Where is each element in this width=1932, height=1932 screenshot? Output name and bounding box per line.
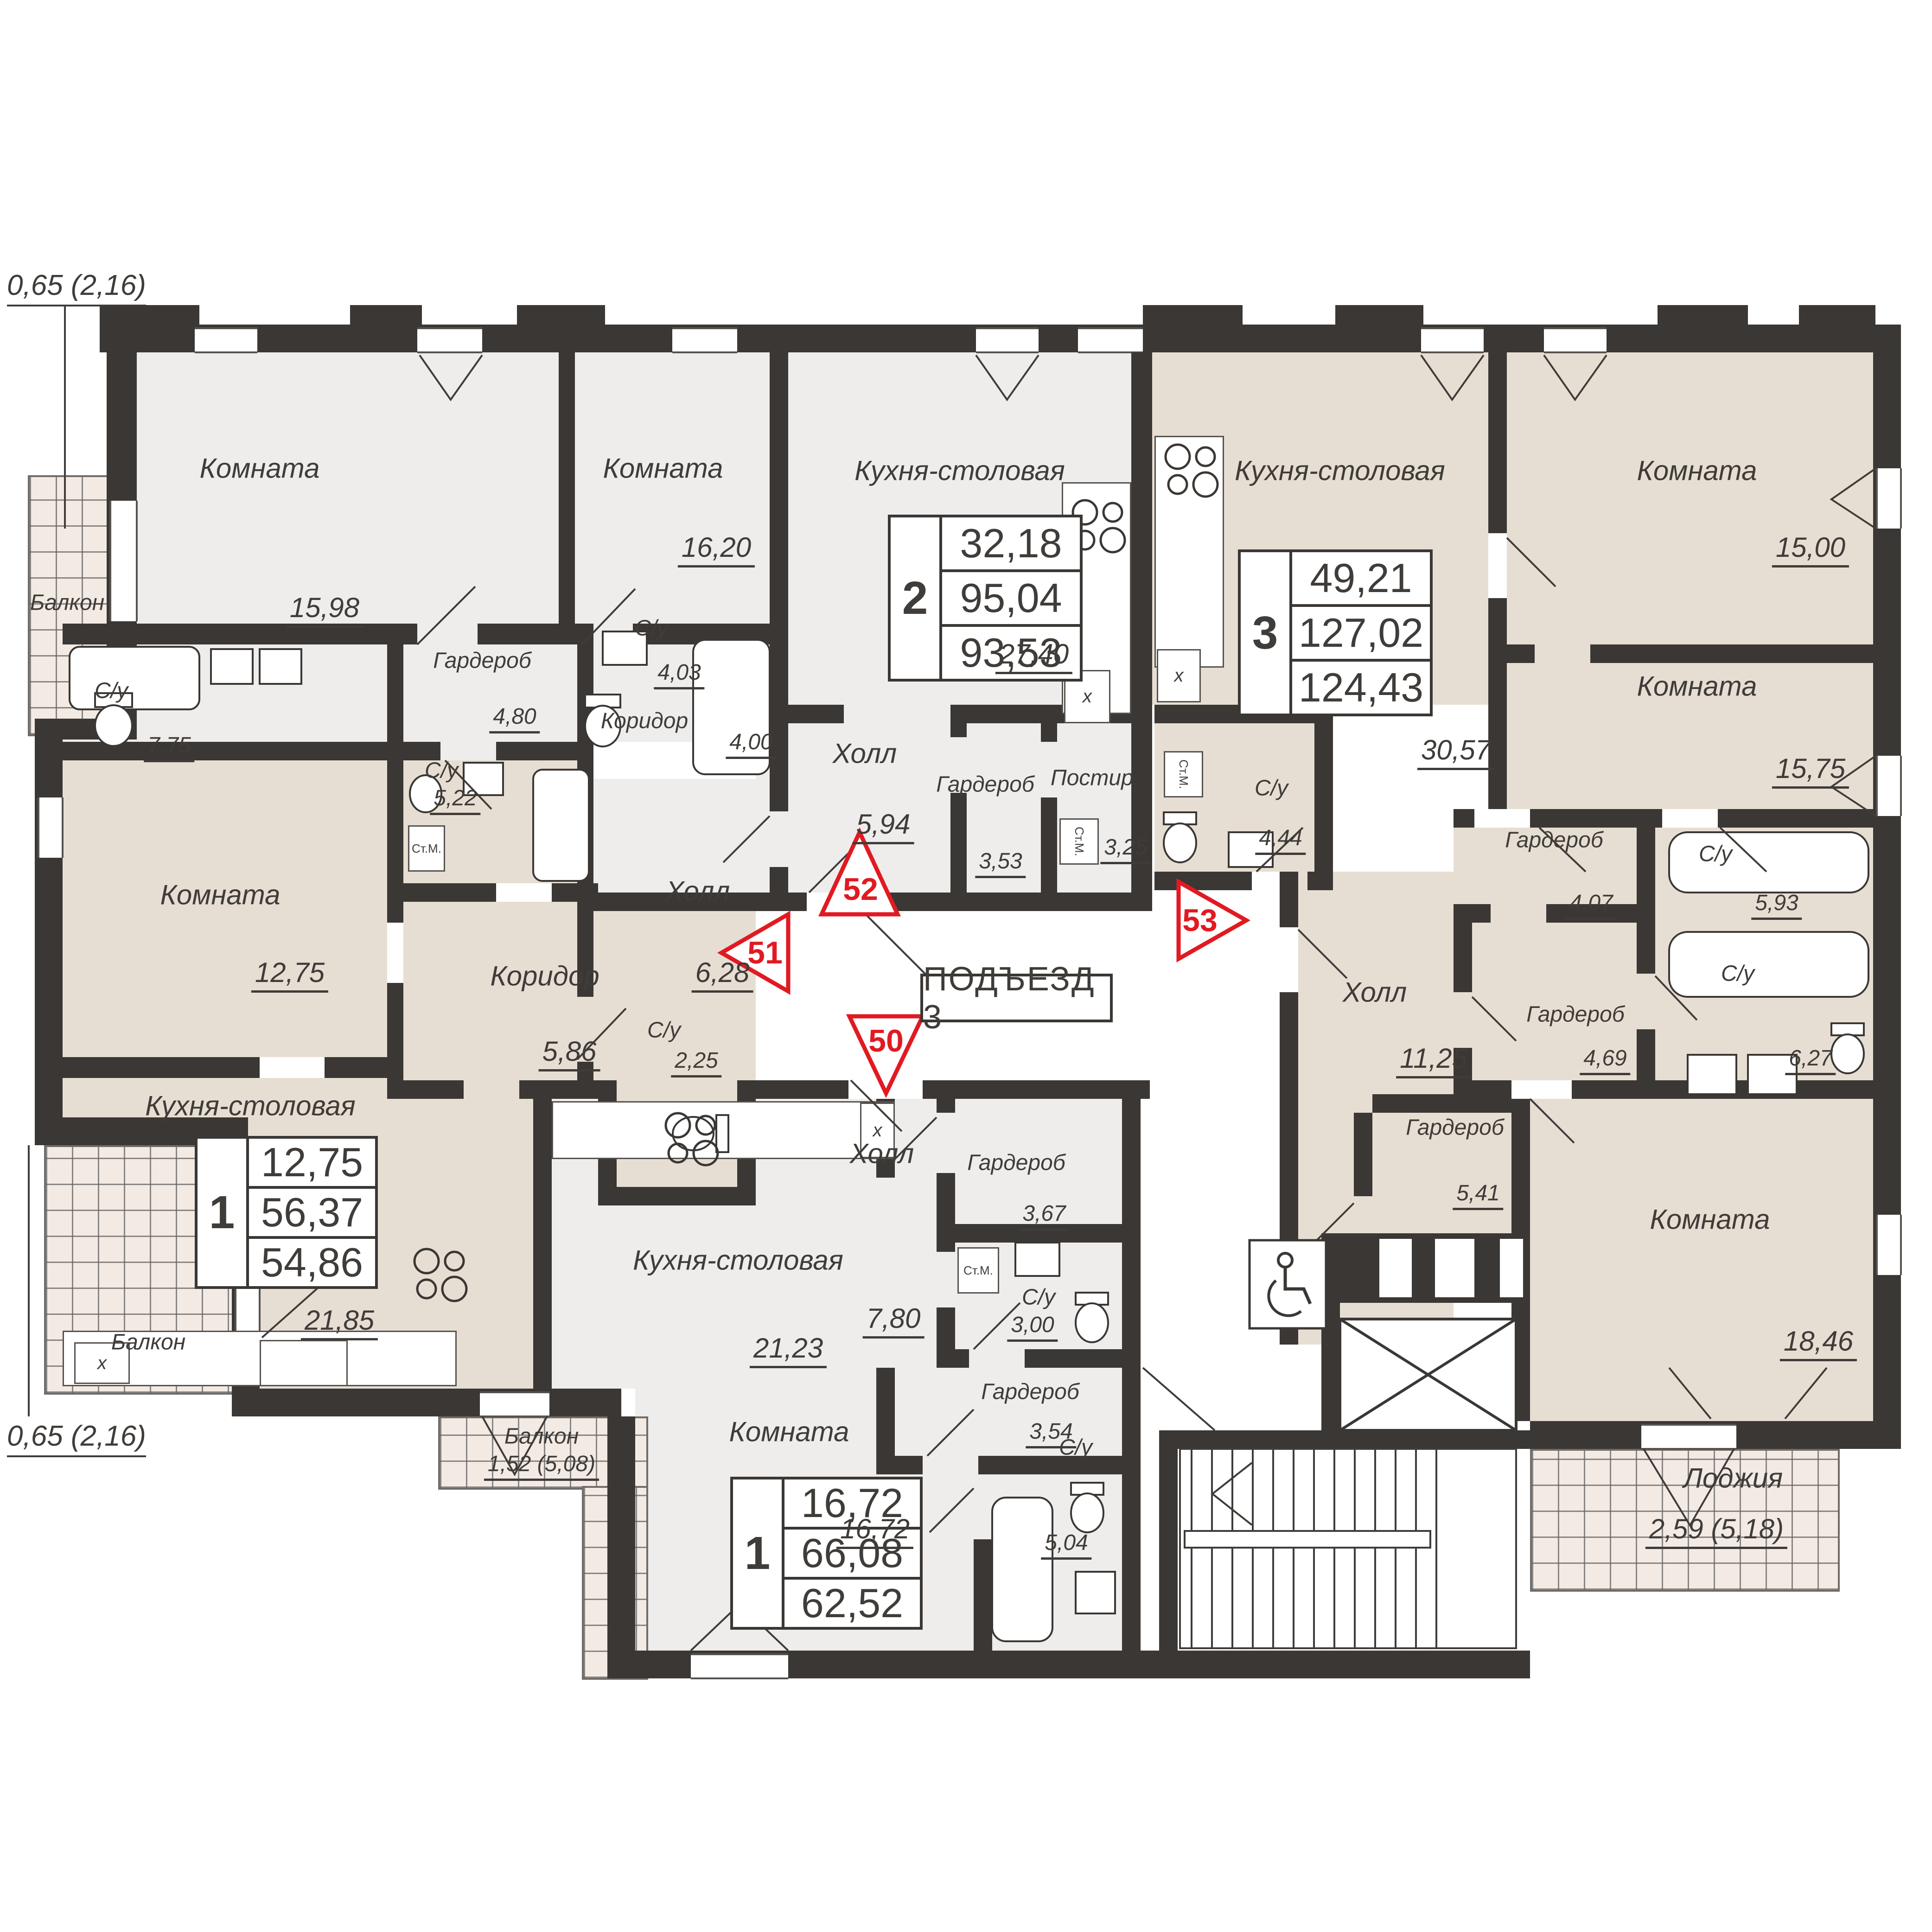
room-area: 18,46 [1780, 1325, 1857, 1361]
room-name: Холл [833, 738, 897, 770]
dimension-bottom-left: 0,65 (2,16) [7, 1420, 146, 1457]
bathtub-icon [533, 770, 589, 881]
room-name: Гардероб [1526, 1002, 1625, 1027]
room-area: 7,75 [144, 733, 194, 762]
room-area: 12,75 [251, 956, 328, 993]
room-area: 5,93 [1751, 890, 1802, 920]
room-name: Холл [666, 875, 730, 907]
room-area: 6,27 [1785, 1046, 1836, 1075]
room-name: С/у [1059, 1435, 1092, 1460]
room-name: Гардероб [1406, 1115, 1504, 1141]
room-name: Комната [729, 1416, 849, 1448]
room-area: 21,23 [750, 1332, 827, 1368]
room-area: 5,86 [539, 1035, 600, 1071]
sink-icon [1015, 1243, 1059, 1276]
room-name: С/у [1022, 1285, 1055, 1310]
toilet-icon [716, 1115, 728, 1152]
room-name: Лоджия [1683, 1462, 1783, 1494]
info-box-apartment-53: 3 49,21 127,02 124,43 [1238, 549, 1433, 716]
rooms-count: 1 [733, 1479, 784, 1627]
living-area: 32,18 [942, 517, 1080, 572]
rooms-count: 3 [1241, 552, 1292, 714]
room-area: 5,41 [1453, 1180, 1503, 1210]
living-area: 12,75 [249, 1139, 375, 1189]
reduced-area: 62,52 [784, 1580, 920, 1627]
room-area: 5,04 [1041, 1530, 1091, 1560]
total-area: 95,04 [942, 572, 1080, 627]
room-name: Гардероб [1505, 828, 1603, 853]
stairs [1180, 1449, 1516, 1648]
reduced-area: 124,43 [1292, 662, 1430, 714]
room-name: Комната [1637, 455, 1757, 487]
room-area: 2,25 [671, 1048, 721, 1078]
room-name: Кухня-столовая [145, 1090, 356, 1122]
room-area: 6,28 [692, 956, 753, 993]
room-name: Гардероб [433, 648, 531, 674]
room-name: Комната [200, 453, 320, 485]
room-area: 3,67 [1019, 1201, 1069, 1231]
room-name: С/у [635, 616, 668, 641]
room-name: С/у [647, 1018, 681, 1043]
room-area: 4,07 [1566, 890, 1616, 920]
room-area: 27,40 [995, 638, 1072, 674]
room-name: Холл [1343, 976, 1407, 1008]
total-area: 127,02 [1292, 607, 1430, 662]
rooms-count: 1 [198, 1139, 249, 1286]
info-box-apartment-51: 1 12,75 56,37 54,86 [195, 1136, 378, 1289]
room-area: 2,59 (5,18) [1645, 1513, 1787, 1549]
room-area: 11,25 [1396, 1042, 1471, 1078]
room-name: Коридор [601, 708, 688, 734]
room-name: Гардероб [936, 772, 1034, 797]
room-area: 15,75 [1772, 752, 1849, 789]
sink-icon [260, 649, 301, 684]
rooms-count: 2 [891, 517, 942, 679]
room-name: С/у [1721, 961, 1754, 987]
room-area: 30,57 [1417, 734, 1494, 770]
room-name: Коридор [490, 960, 599, 992]
room-name: Балкон [30, 590, 104, 616]
room-area: 7,80 [863, 1302, 925, 1339]
dimension-top-left: 0,65 (2,16) [7, 269, 146, 306]
marker-53[interactable]: 53 [1182, 902, 1218, 938]
room-name: С/у [1255, 776, 1288, 801]
room-area: 4,80 [489, 704, 540, 733]
entrance-text: ПОДЪЕЗД 3 [923, 960, 1110, 1036]
room-name: Кухня-столовая [633, 1244, 843, 1276]
room-area: 4,03 [654, 660, 704, 689]
room-name: С/у [1699, 842, 1732, 867]
room-area: 15,00 [1772, 531, 1849, 567]
room-area: 16,72 [836, 1513, 913, 1549]
room-area: 3,00 [1007, 1312, 1058, 1342]
bathtub-icon [70, 647, 199, 709]
elevator [1340, 1319, 1516, 1430]
room-name: Балкон [111, 1330, 185, 1355]
room-name: Комната [160, 879, 281, 911]
room-name: Кухня-столовая [854, 455, 1065, 487]
room-name: Комната [1650, 1204, 1770, 1236]
room-area: 4,44 [1255, 825, 1306, 855]
room-area: 5,22 [430, 785, 480, 815]
sink-icon [211, 649, 253, 684]
room-name: Холл [850, 1138, 914, 1170]
room-name: Комната [603, 453, 723, 485]
room-area: 21,85 [301, 1304, 378, 1340]
room-area: 1,52 (5,08) [484, 1451, 599, 1481]
wheelchair-icon [1250, 1240, 1326, 1328]
sink-icon [1076, 1572, 1115, 1613]
floor-plan: х х х х Ст.М. Ст.М. Ст.М. Ст.М. [0, 0, 1932, 1932]
info-box-apartment-50: 1 16,72 66,08 62,52 [730, 1477, 923, 1630]
room-name: Гардероб [967, 1150, 1065, 1176]
room-name: Кухня-столовая [1235, 455, 1445, 487]
room-area: 16,20 [678, 531, 755, 567]
room-name: Балкон [504, 1424, 579, 1449]
room-area: 5,94 [853, 808, 914, 844]
room-area: 3,53 [975, 848, 1026, 878]
room-name: Комната [1637, 670, 1757, 702]
room-name: С/у [425, 758, 458, 784]
entrance-label: ПОДЪЕЗД 3 [920, 974, 1113, 1022]
room-name: Постир. [1051, 765, 1140, 791]
marker-50[interactable]: 50 [868, 1023, 904, 1059]
total-area: 56,37 [249, 1189, 375, 1239]
marker-52[interactable]: 52 [843, 871, 878, 907]
room-name: С/у [95, 678, 128, 704]
room-name: Гардероб [981, 1379, 1079, 1405]
room-area: 4,00 [726, 729, 776, 759]
bathtub-icon [1669, 932, 1868, 997]
room-area: 3,25 [1100, 835, 1151, 864]
bathtub-icon [992, 1498, 1052, 1641]
reduced-area: 54,86 [249, 1239, 375, 1286]
sink-icon [1688, 1055, 1736, 1094]
room-area: 15,98 [286, 592, 363, 628]
living-area: 49,21 [1292, 552, 1430, 607]
room-area: 4,69 [1580, 1046, 1630, 1075]
